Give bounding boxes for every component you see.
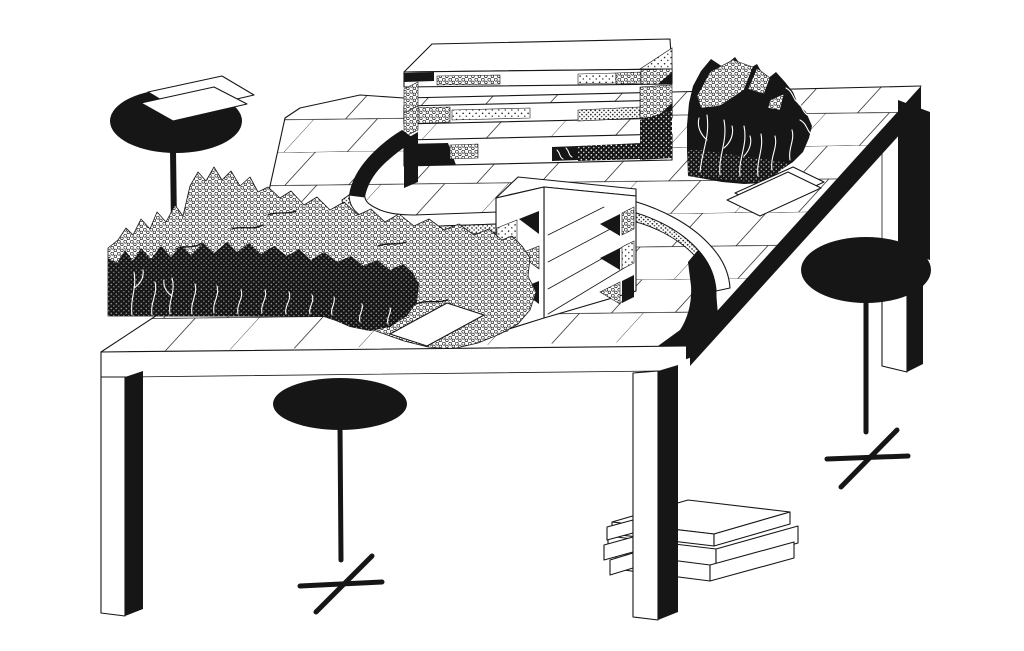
stool-center-stem — [340, 425, 341, 560]
table-leg-front-right — [633, 365, 678, 620]
artwork-canvas: Ink drawing of a miniature landscape arr… — [0, 0, 1024, 651]
table-leg-front-left — [101, 371, 143, 616]
illustration: Ink drawing of a miniature landscape arr… — [0, 0, 1024, 651]
stool-center-seat — [273, 378, 407, 430]
stool-right-seat — [801, 237, 931, 303]
